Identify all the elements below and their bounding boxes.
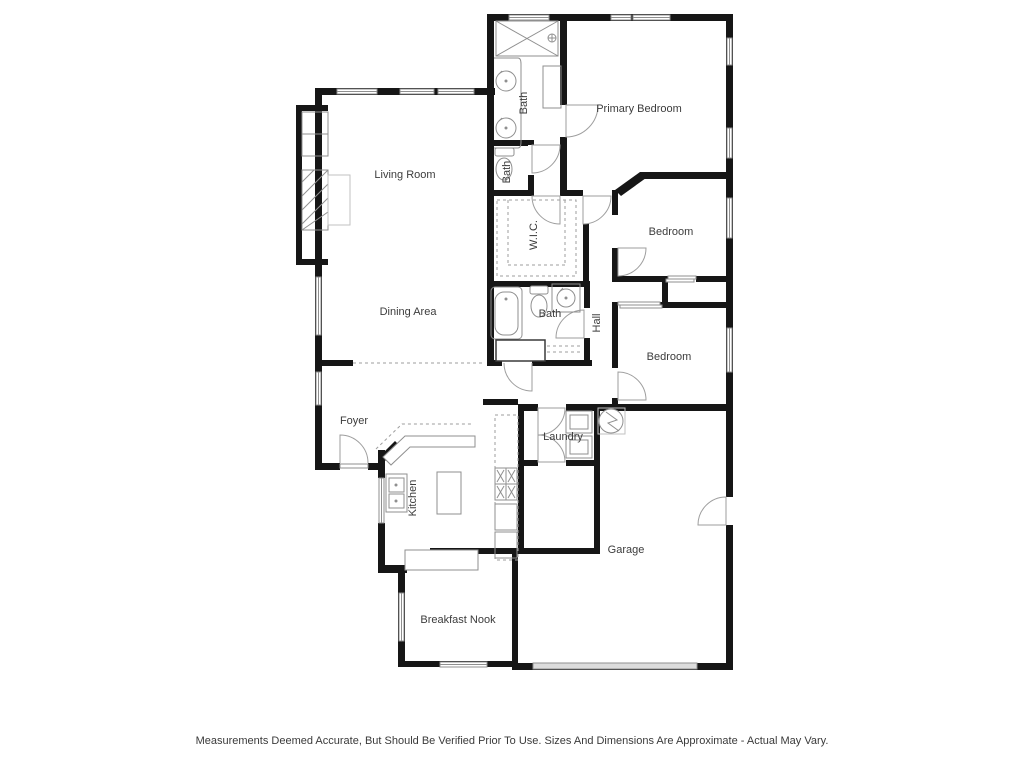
double-vanity-sinks xyxy=(494,58,521,148)
small-bath-door xyxy=(532,145,560,173)
floor-plan-page: Living Room Dining Area Primary Bedroom … xyxy=(0,0,1024,768)
room-label-kitchen: Kitchen xyxy=(407,480,419,517)
window xyxy=(727,128,732,158)
linen-closet xyxy=(496,340,583,361)
room-label-primary-bedroom: Primary Bedroom xyxy=(596,103,682,115)
window xyxy=(316,277,321,335)
window xyxy=(438,89,474,94)
water-heater xyxy=(598,408,625,434)
stove xyxy=(495,468,517,500)
room-label-wic: W.I.C. xyxy=(528,220,540,250)
sliding-closet-door xyxy=(618,302,662,308)
room-label-garage: Garage xyxy=(608,544,645,556)
window xyxy=(633,15,670,20)
disclaimer-text: Measurements Deemed Accurate, But Should… xyxy=(0,735,1024,747)
room-label-bath-primary: Bath xyxy=(518,92,530,115)
window xyxy=(727,328,732,372)
window xyxy=(727,38,732,65)
washer xyxy=(566,411,592,433)
window xyxy=(379,478,384,523)
room-label-bath-hall: Bath xyxy=(539,308,562,320)
room-label-bedroom-1: Bedroom xyxy=(649,226,694,238)
room-label-laundry: Laundry xyxy=(543,431,583,443)
door-threshold xyxy=(340,464,368,468)
window xyxy=(440,662,487,667)
window xyxy=(509,15,549,20)
fixtures xyxy=(302,21,697,669)
room-label-bath-small: Bath xyxy=(501,161,513,184)
primary-bedroom-door xyxy=(566,105,598,137)
kitchen-island xyxy=(437,472,461,514)
room-label-bedroom-2: Bedroom xyxy=(647,351,692,363)
room-label-hall: Hall xyxy=(591,314,603,333)
front-door xyxy=(340,435,368,463)
window xyxy=(611,15,631,20)
bathtub xyxy=(491,287,522,339)
bench-cabinet xyxy=(543,66,561,108)
bedroom-door xyxy=(618,372,646,400)
room-label-dining-area: Dining Area xyxy=(380,306,438,318)
kitchen-sink xyxy=(386,474,407,512)
room-label-foyer: Foyer xyxy=(340,415,368,427)
hall-door xyxy=(583,196,611,224)
corridor-door xyxy=(504,363,532,391)
floor-plan-drawing: Living Room Dining Area Primary Bedroom … xyxy=(0,0,1024,768)
fireplace xyxy=(302,170,350,230)
shower xyxy=(496,21,558,56)
room-label-living-room: Living Room xyxy=(374,169,435,181)
bedroom-door xyxy=(618,248,646,276)
garage-side-door xyxy=(698,497,726,525)
room-label-breakfast-nook: Breakfast Nook xyxy=(420,614,496,626)
sliding-closet-door xyxy=(666,276,696,282)
window xyxy=(400,89,434,94)
window xyxy=(399,593,404,641)
window xyxy=(337,89,377,94)
window xyxy=(316,372,321,405)
garage-door xyxy=(533,663,697,669)
kitchen-cabinet xyxy=(495,504,517,530)
window xyxy=(727,198,732,238)
